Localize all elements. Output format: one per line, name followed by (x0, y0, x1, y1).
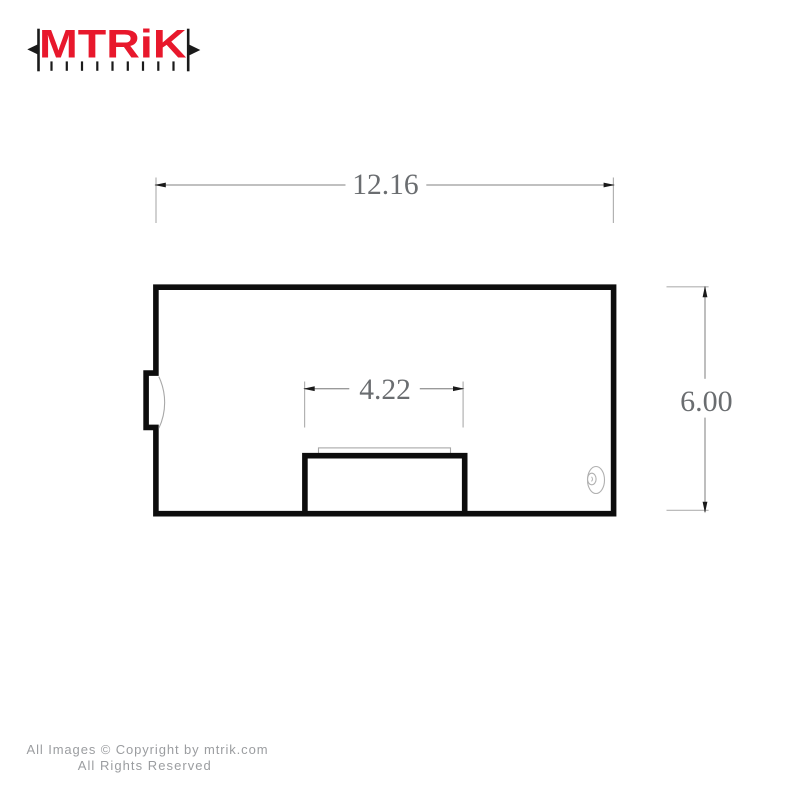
svg-text:12.16: 12.16 (352, 169, 418, 201)
svg-text:All Images © Copyright by mtri: All Images © Copyright by mtrik.com (27, 742, 269, 757)
svg-text:6.00: 6.00 (680, 385, 733, 418)
svg-text:MTRiK: MTRiK (39, 22, 187, 67)
svg-text:All Rights Reserved: All Rights Reserved (78, 758, 212, 773)
svg-text:4.22: 4.22 (359, 374, 411, 406)
